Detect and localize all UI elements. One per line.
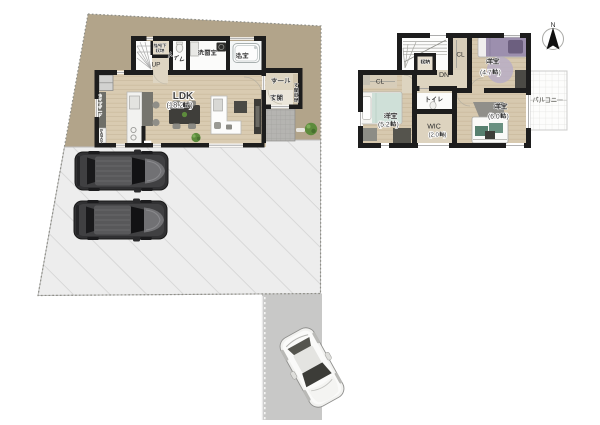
svg-text:): ) — [397, 122, 399, 129]
svg-text:UP: UP — [151, 62, 160, 69]
svg-text:CL: CL — [456, 52, 465, 59]
svg-text:(6.0: (6.0 — [488, 114, 500, 121]
svg-text:(4.7: (4.7 — [480, 70, 492, 77]
svg-text:(2.0: (2.0 — [429, 132, 440, 139]
svg-text:(5.2: (5.2 — [378, 122, 390, 129]
svg-text:CL: CL — [376, 79, 385, 86]
svg-text:(18.2: (18.2 — [166, 101, 183, 110]
svg-text:): ) — [499, 70, 501, 77]
svg-text:WIC: WIC — [427, 124, 441, 131]
svg-text:): ) — [445, 132, 447, 139]
svg-text:N: N — [550, 22, 555, 29]
svg-text:): ) — [507, 114, 509, 121]
svg-text:DN: DN — [439, 72, 449, 79]
